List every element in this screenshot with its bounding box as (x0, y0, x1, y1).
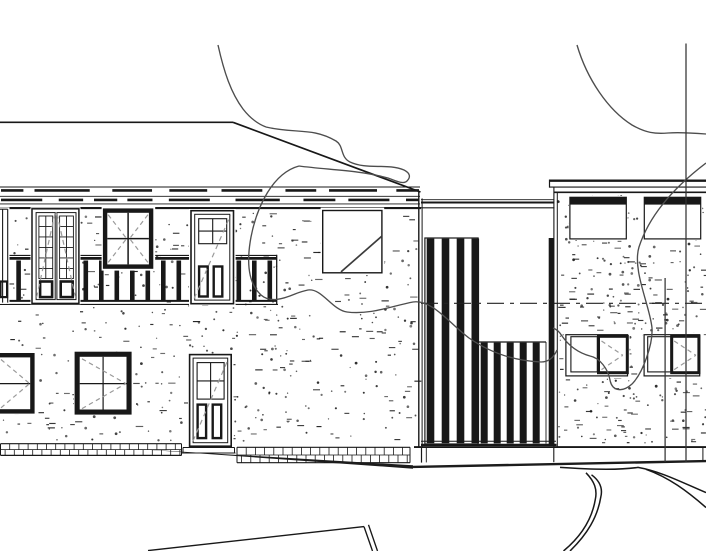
window-square (321, 208, 385, 276)
ground-door (182, 354, 236, 454)
door-upper (189, 209, 236, 305)
window-upper-left (102, 207, 156, 271)
drawing-canvas (0, 0, 706, 551)
elevation-drawing (0, 0, 706, 551)
